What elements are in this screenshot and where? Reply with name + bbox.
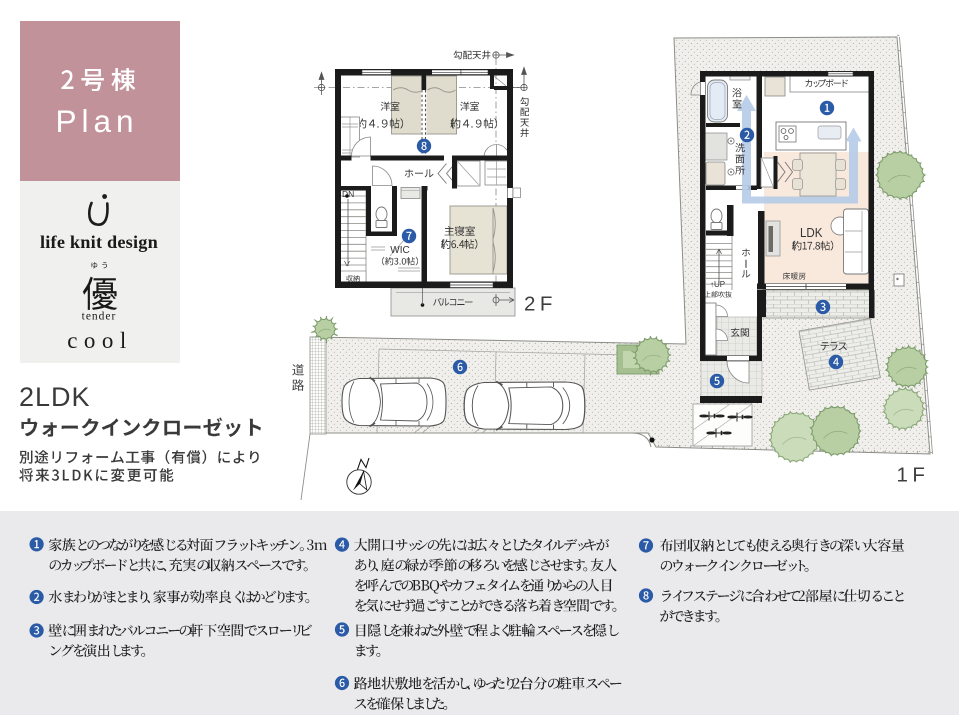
svg-text:WIC: WIC — [390, 245, 409, 256]
svg-text:LDK: LDK — [800, 225, 823, 240]
svg-text:2LDK: 2LDK — [19, 382, 91, 412]
svg-text:Plan: Plan — [55, 103, 138, 139]
svg-text:cool: cool — [67, 328, 133, 353]
svg-text:↑UP: ↑UP — [710, 280, 725, 289]
svg-text:1F: 1F — [897, 464, 930, 487]
svg-text:life knit design: life knit design — [40, 232, 158, 252]
svg-text:tender: tender — [82, 311, 117, 323]
svg-text:2F: 2F — [524, 293, 557, 316]
